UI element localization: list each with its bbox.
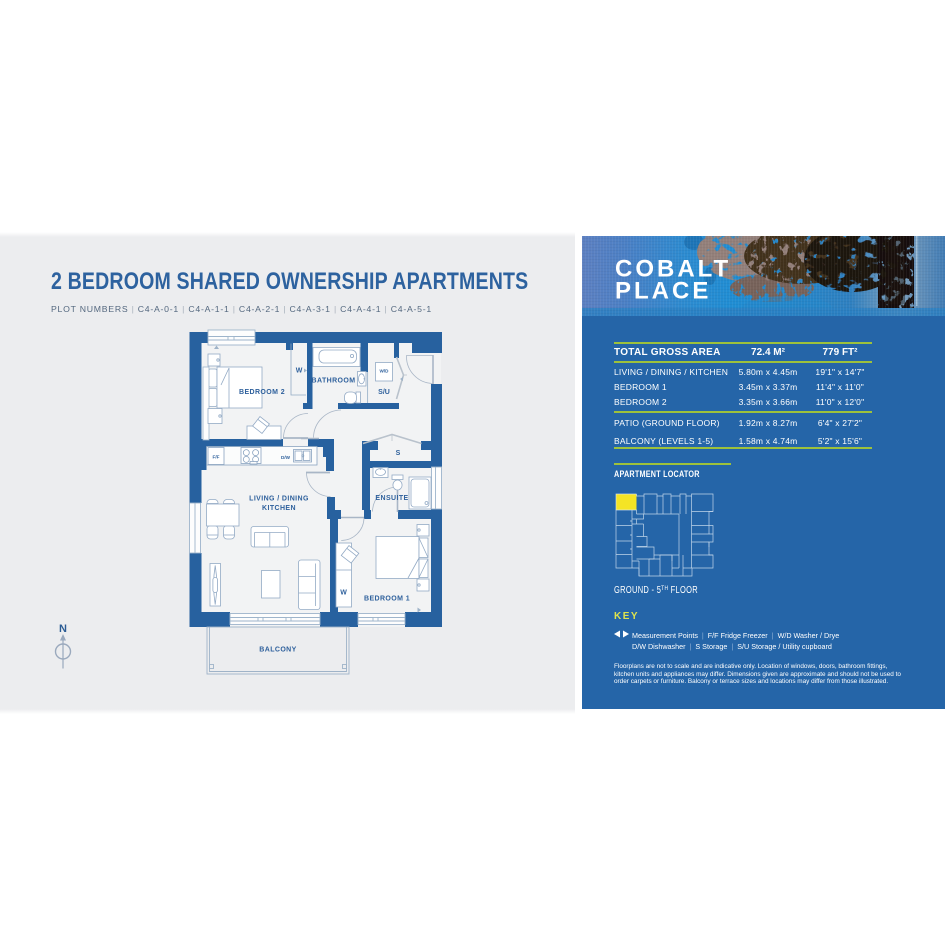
svg-text:W: W xyxy=(296,368,303,375)
svg-text:F/F: F/F xyxy=(213,455,220,460)
svg-text:W/D: W/D xyxy=(380,369,390,374)
svg-text:W: W xyxy=(340,590,347,597)
svg-text:KITCHEN: KITCHEN xyxy=(262,505,296,512)
svg-text:N: N xyxy=(59,623,67,635)
svg-text:BALCONY: BALCONY xyxy=(259,647,296,654)
svg-text:LIVING / DINING: LIVING / DINING xyxy=(249,496,309,503)
svg-text:S: S xyxy=(396,450,401,457)
svg-text:S/U: S/U xyxy=(378,389,390,396)
svg-text:ENSUITE: ENSUITE xyxy=(375,495,408,502)
svg-text:BEDROOM 1: BEDROOM 1 xyxy=(364,596,410,603)
svg-text:PLACE: PLACE xyxy=(615,278,711,305)
svg-text:BEDROOM 2: BEDROOM 2 xyxy=(239,389,285,396)
svg-text:D/W: D/W xyxy=(281,455,291,460)
svg-text:BATHROOM: BATHROOM xyxy=(312,378,356,385)
